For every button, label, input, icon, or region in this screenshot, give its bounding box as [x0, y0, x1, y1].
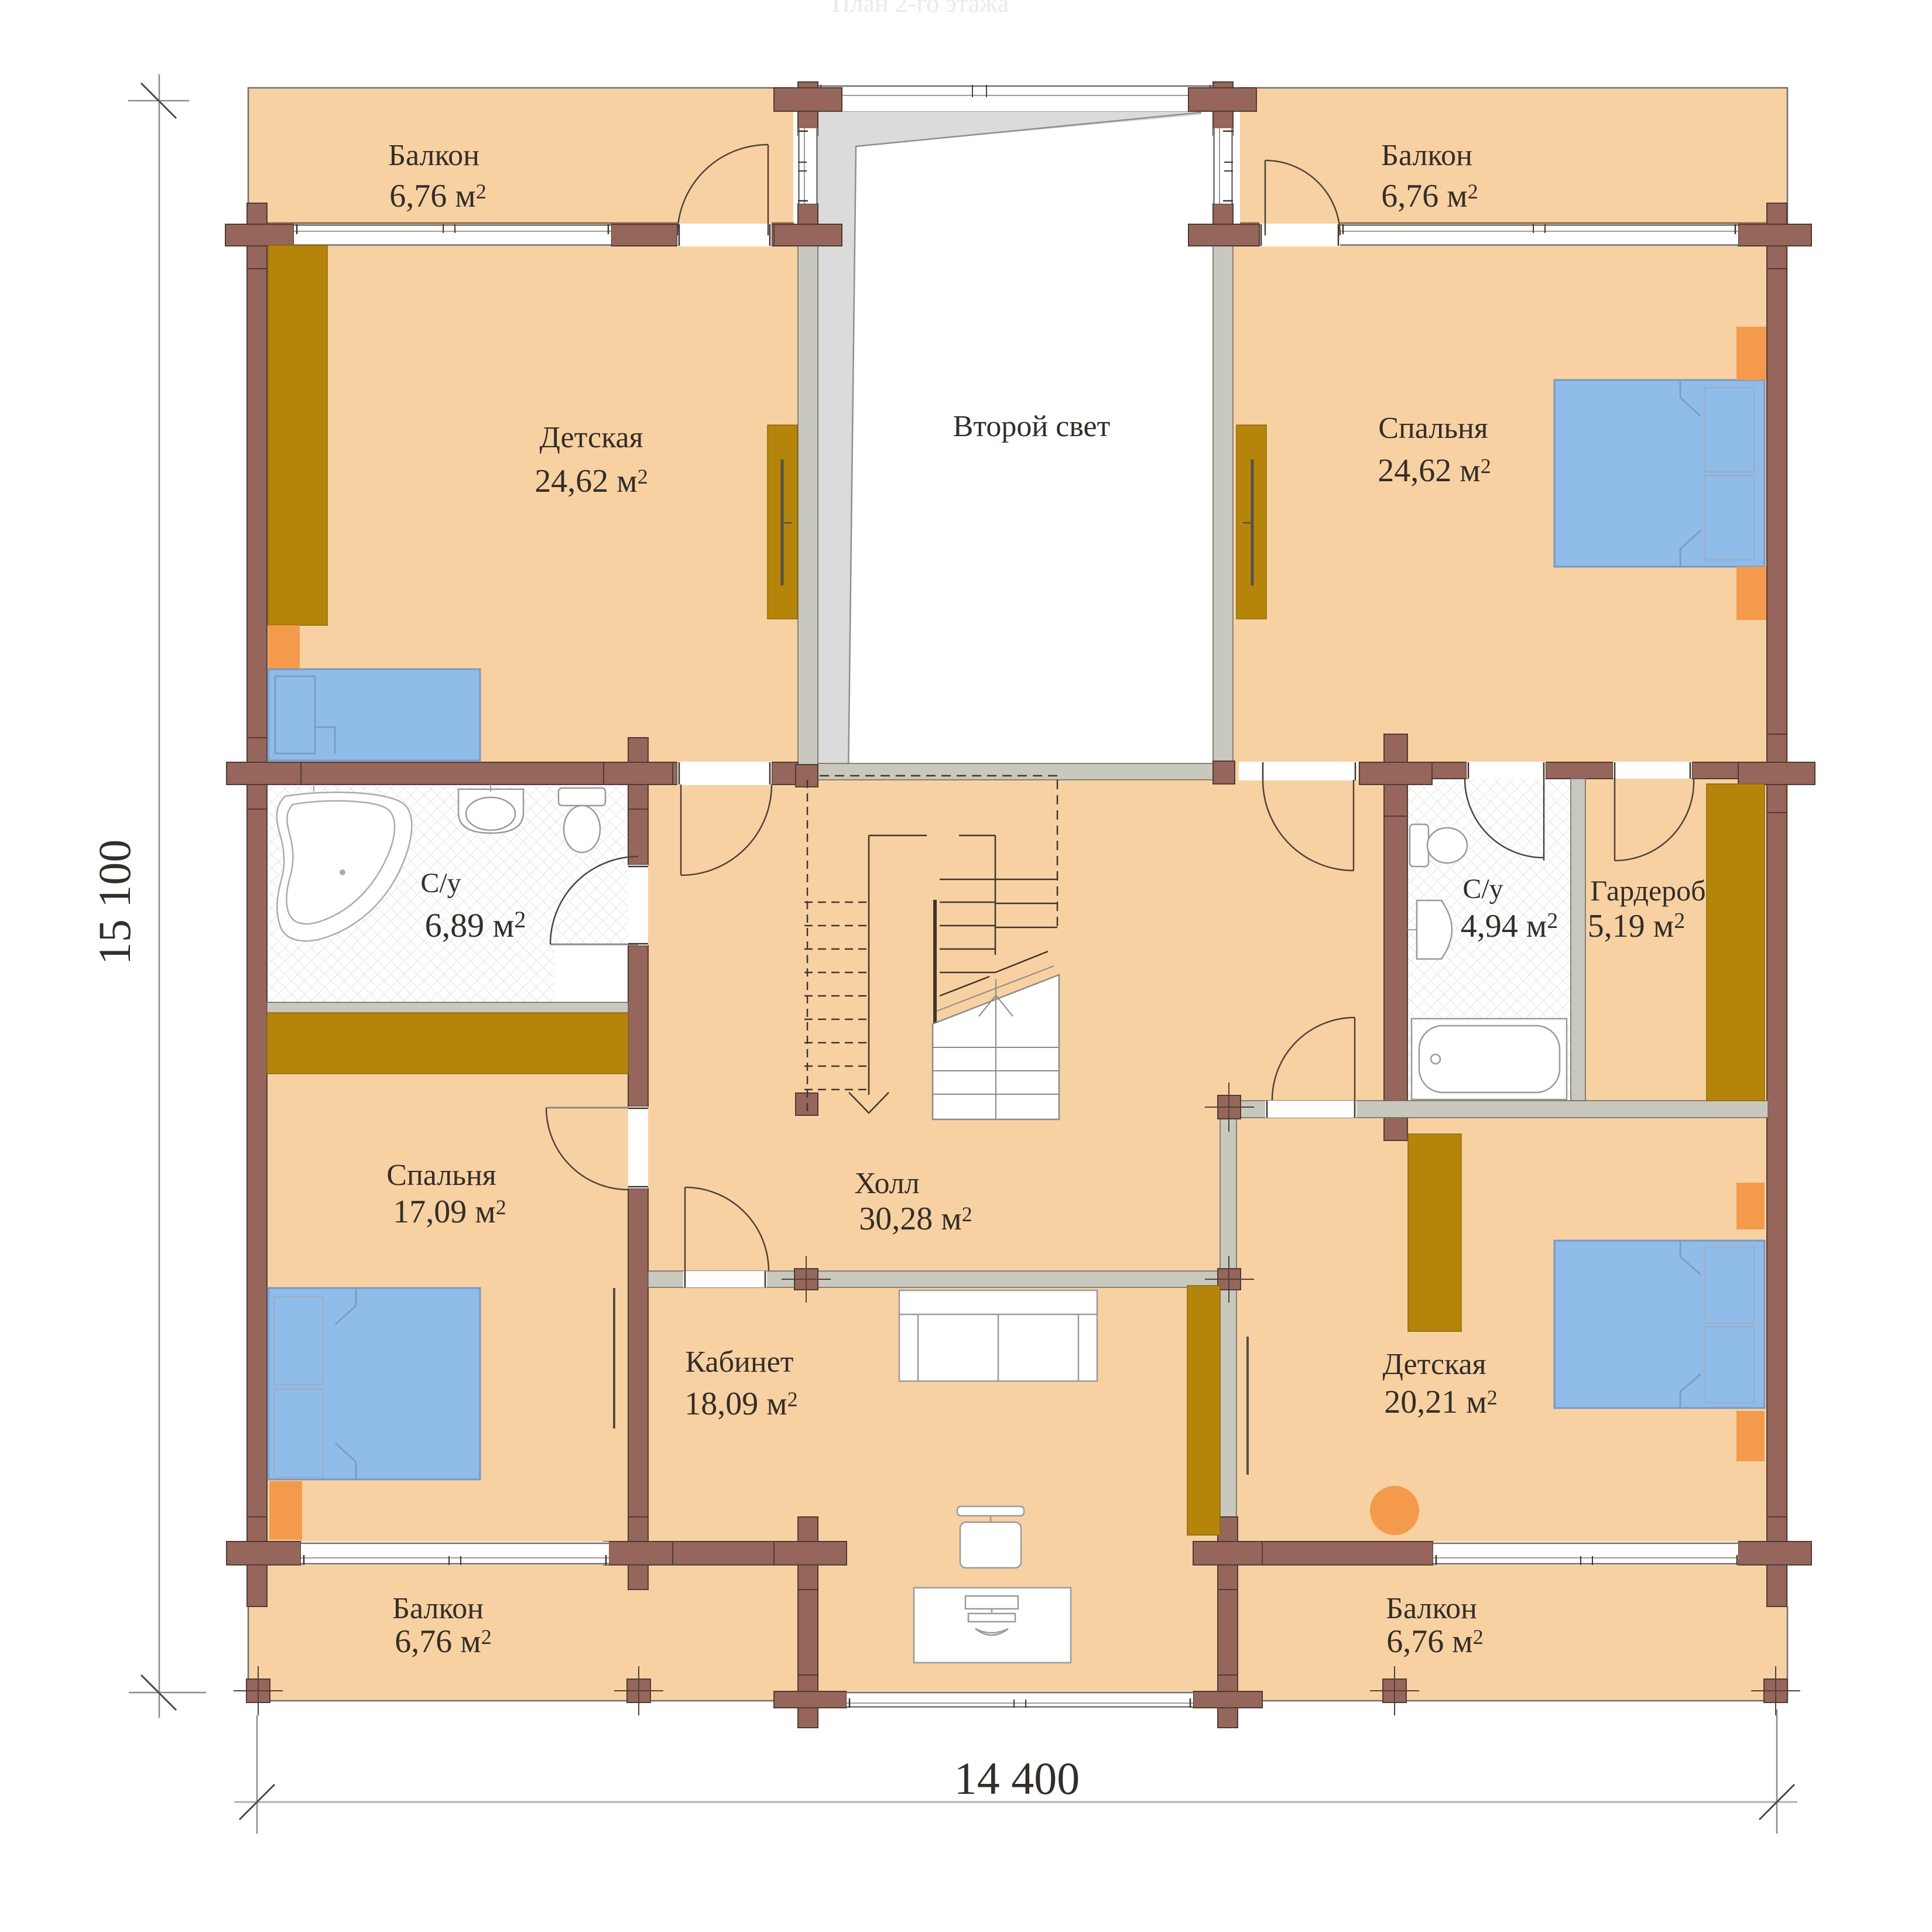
svg-text:20,21 м2: 20,21 м2: [1384, 1384, 1497, 1420]
svg-text:Балкон: Балкон: [1381, 139, 1472, 172]
svg-text:План 2-го этажа: План 2-го этажа: [832, 0, 1009, 18]
svg-text:Детская: Детская: [1382, 1348, 1486, 1381]
svg-text:Спальня: Спальня: [386, 1159, 496, 1192]
svg-text:6,76 м2: 6,76 м2: [389, 178, 486, 214]
svg-text:5,19 м2: 5,19 м2: [1588, 908, 1685, 944]
svg-text:Второй свет: Второй свет: [953, 410, 1111, 443]
svg-text:24,62 м2: 24,62 м2: [1378, 453, 1491, 489]
svg-text:Холл: Холл: [854, 1167, 920, 1200]
svg-text:14 400: 14 400: [954, 1753, 1080, 1804]
svg-text:С/у: С/у: [1462, 873, 1503, 905]
svg-text:15 100: 15 100: [89, 840, 140, 965]
svg-text:6,76 м2: 6,76 м2: [395, 1623, 491, 1660]
svg-text:Спальня: Спальня: [1378, 412, 1488, 445]
svg-text:Балкон: Балкон: [388, 139, 479, 172]
svg-text:6,89 м2: 6,89 м2: [425, 906, 526, 944]
svg-text:Балкон: Балкон: [1386, 1592, 1477, 1625]
svg-text:С/у: С/у: [420, 868, 461, 899]
svg-text:30,28 м2: 30,28 м2: [859, 1201, 972, 1237]
svg-text:17,09 м2: 17,09 м2: [393, 1194, 506, 1230]
svg-text:Гардероб: Гардероб: [1590, 874, 1705, 907]
svg-text:18,09 м2: 18,09 м2: [684, 1386, 797, 1422]
svg-text:Детская: Детская: [539, 421, 643, 454]
svg-text:4,94 м2: 4,94 м2: [1461, 908, 1558, 944]
svg-text:Балкон: Балкон: [392, 1592, 484, 1625]
svg-text:6,76 м2: 6,76 м2: [1386, 1623, 1483, 1660]
svg-text:Кабинет: Кабинет: [686, 1345, 794, 1379]
svg-text:6,76 м2: 6,76 м2: [1381, 178, 1478, 214]
svg-text:24,62 м2: 24,62 м2: [535, 463, 648, 499]
